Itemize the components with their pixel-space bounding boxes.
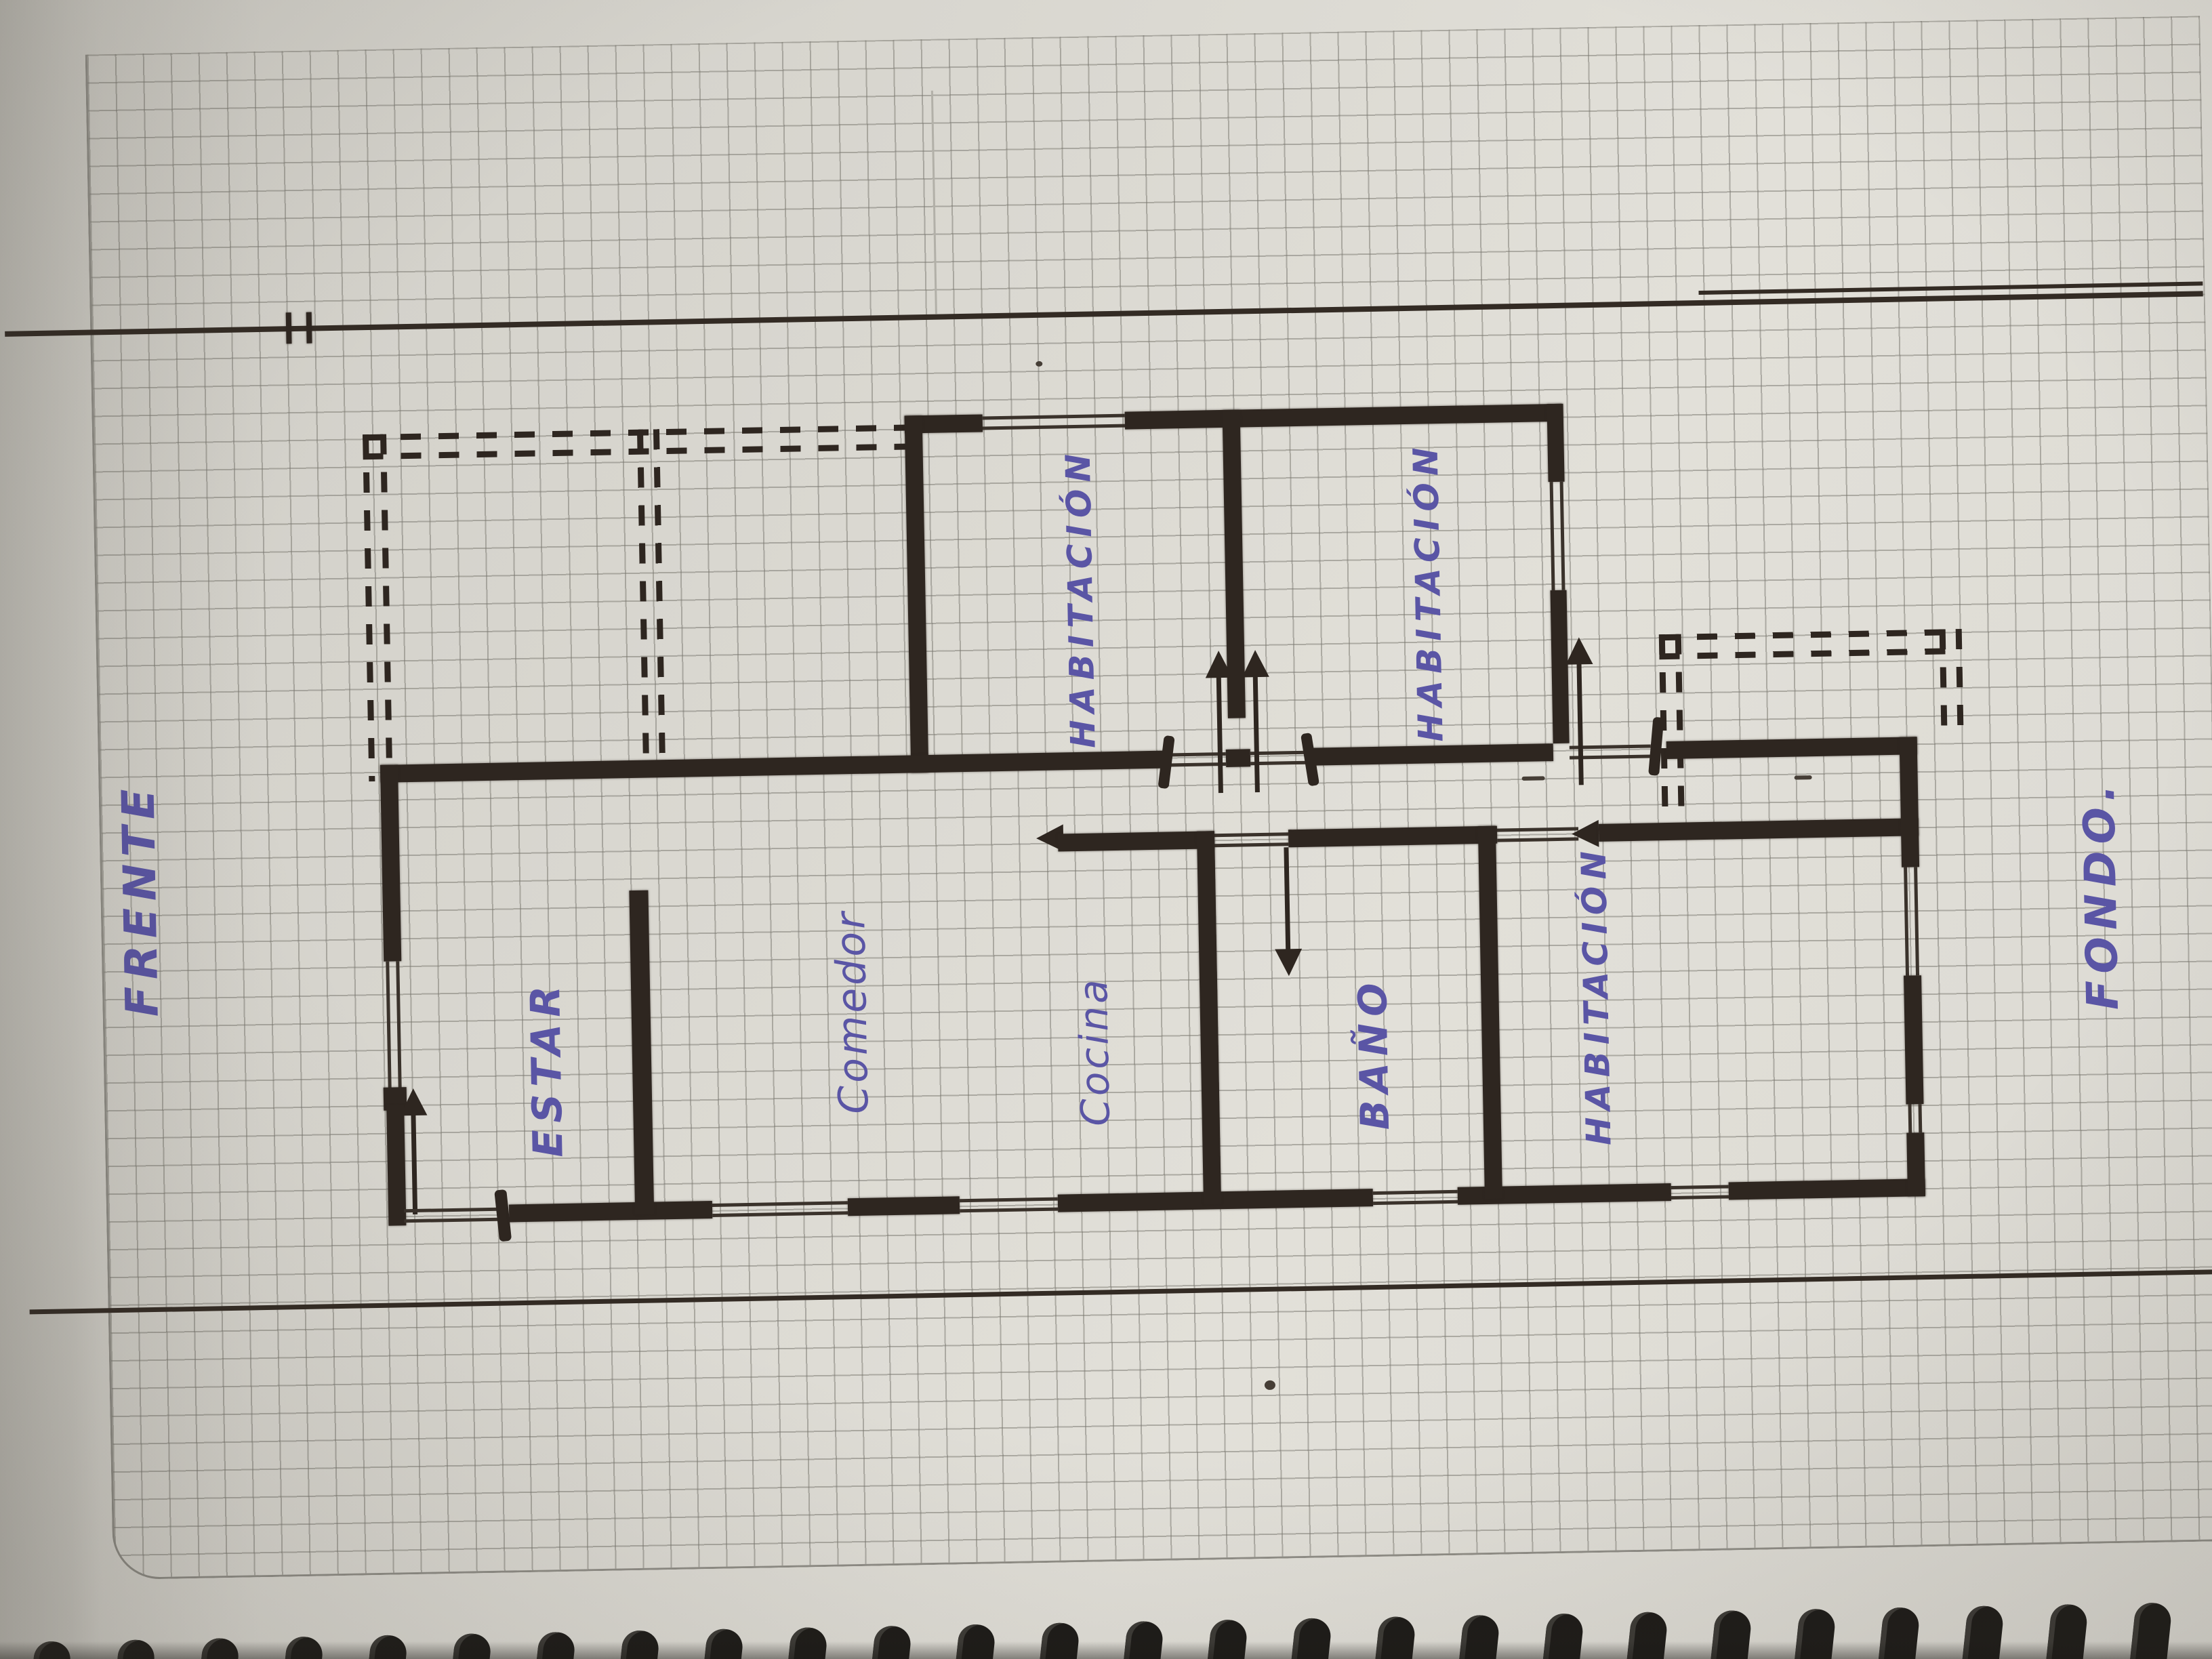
front-door-arrow-head <box>400 1088 428 1116</box>
wall-left-upper <box>380 764 401 961</box>
ink-speck-2 <box>1522 776 1545 781</box>
room-label-habitacion3: HABITACIÓN <box>1562 804 1630 1185</box>
spiral-binding <box>0 0 2197 21</box>
wall-left-lower <box>386 1105 406 1225</box>
door-arrow-habitacion1-head <box>1205 651 1233 678</box>
wall-right-upper <box>1900 737 1920 867</box>
porch-threshold <box>404 1208 499 1223</box>
room-label-estar: ESTAR <box>513 878 581 1259</box>
wall-habitacion2-right-lower <box>1551 590 1570 743</box>
window-habitacion3-bottom <box>1671 1185 1729 1200</box>
survey-tick-1 <box>286 312 292 344</box>
wall-bottom-seg5 <box>1729 1179 1925 1200</box>
photo-bottom-shadow <box>0 1641 2212 1659</box>
room-label-comedor: Comedor <box>819 821 886 1202</box>
window-cocina-bottom <box>960 1197 1058 1213</box>
window-habitacion3-right <box>1904 867 1919 975</box>
door-arrow-habitacion2a-head <box>1242 650 1269 678</box>
room-label-cocina: Cocina <box>1061 861 1128 1242</box>
wall-habitacion2-right-upper <box>1547 404 1564 482</box>
room-label-habitacion1: HABITACIÓN <box>1046 407 1114 788</box>
wall-right-mid <box>1904 975 1923 1104</box>
room-label-habitacion2: HABITACIÓN <box>1394 401 1462 782</box>
wall-corridor-north-divider-foot <box>1226 749 1250 767</box>
window-comedor-bottom <box>712 1201 848 1217</box>
label-fondo: FONDO. <box>2068 704 2135 1085</box>
ink-speck-3 <box>1795 775 1812 779</box>
door-arrow-habitacion2b-head <box>1565 637 1593 665</box>
room-label-bano: BAÑO <box>1340 863 1408 1244</box>
wall-corridor-south-cocina <box>1058 831 1214 851</box>
graph-paper-grid <box>85 16 2212 1580</box>
label-frente: FRENTE <box>106 710 174 1090</box>
survey-tick-2 <box>306 312 312 344</box>
photo-of-notebook-page: FRENTE FONDO. ESTAR Comedor Cocina BAÑO … <box>0 0 2212 1659</box>
window-habitacion3-right-small <box>1908 1104 1923 1132</box>
window-habitacion2-right <box>1550 482 1565 590</box>
sheet: FRENTE FONDO. ESTAR Comedor Cocina BAÑO … <box>0 0 2212 1659</box>
wall-right-lower <box>1906 1132 1925 1196</box>
front-door-opening <box>386 961 402 1100</box>
door-sill-bano <box>1214 832 1288 847</box>
door-arrow-bano-head <box>1275 949 1303 977</box>
